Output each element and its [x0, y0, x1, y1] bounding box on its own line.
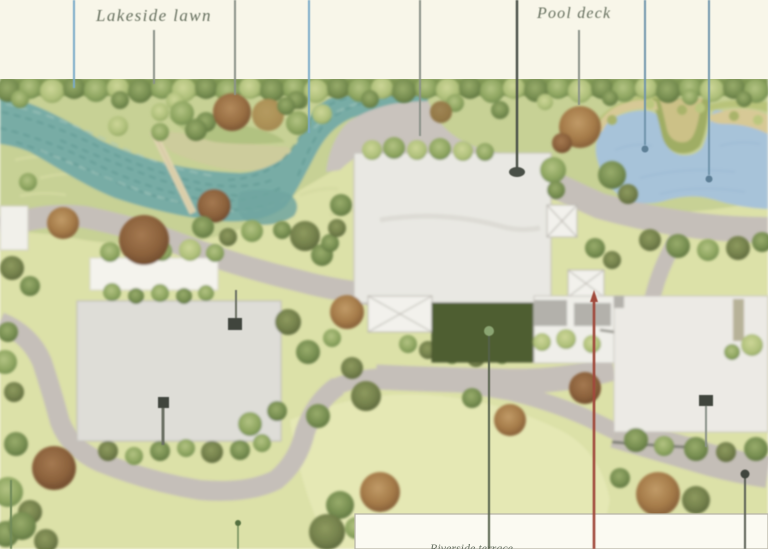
- svg-text:Pool deck: Pool deck: [536, 5, 611, 22]
- svg-text:Riverside terrace: Riverside terrace: [429, 541, 514, 549]
- svg-text:Lakeside lawn: Lakeside lawn: [95, 6, 212, 25]
